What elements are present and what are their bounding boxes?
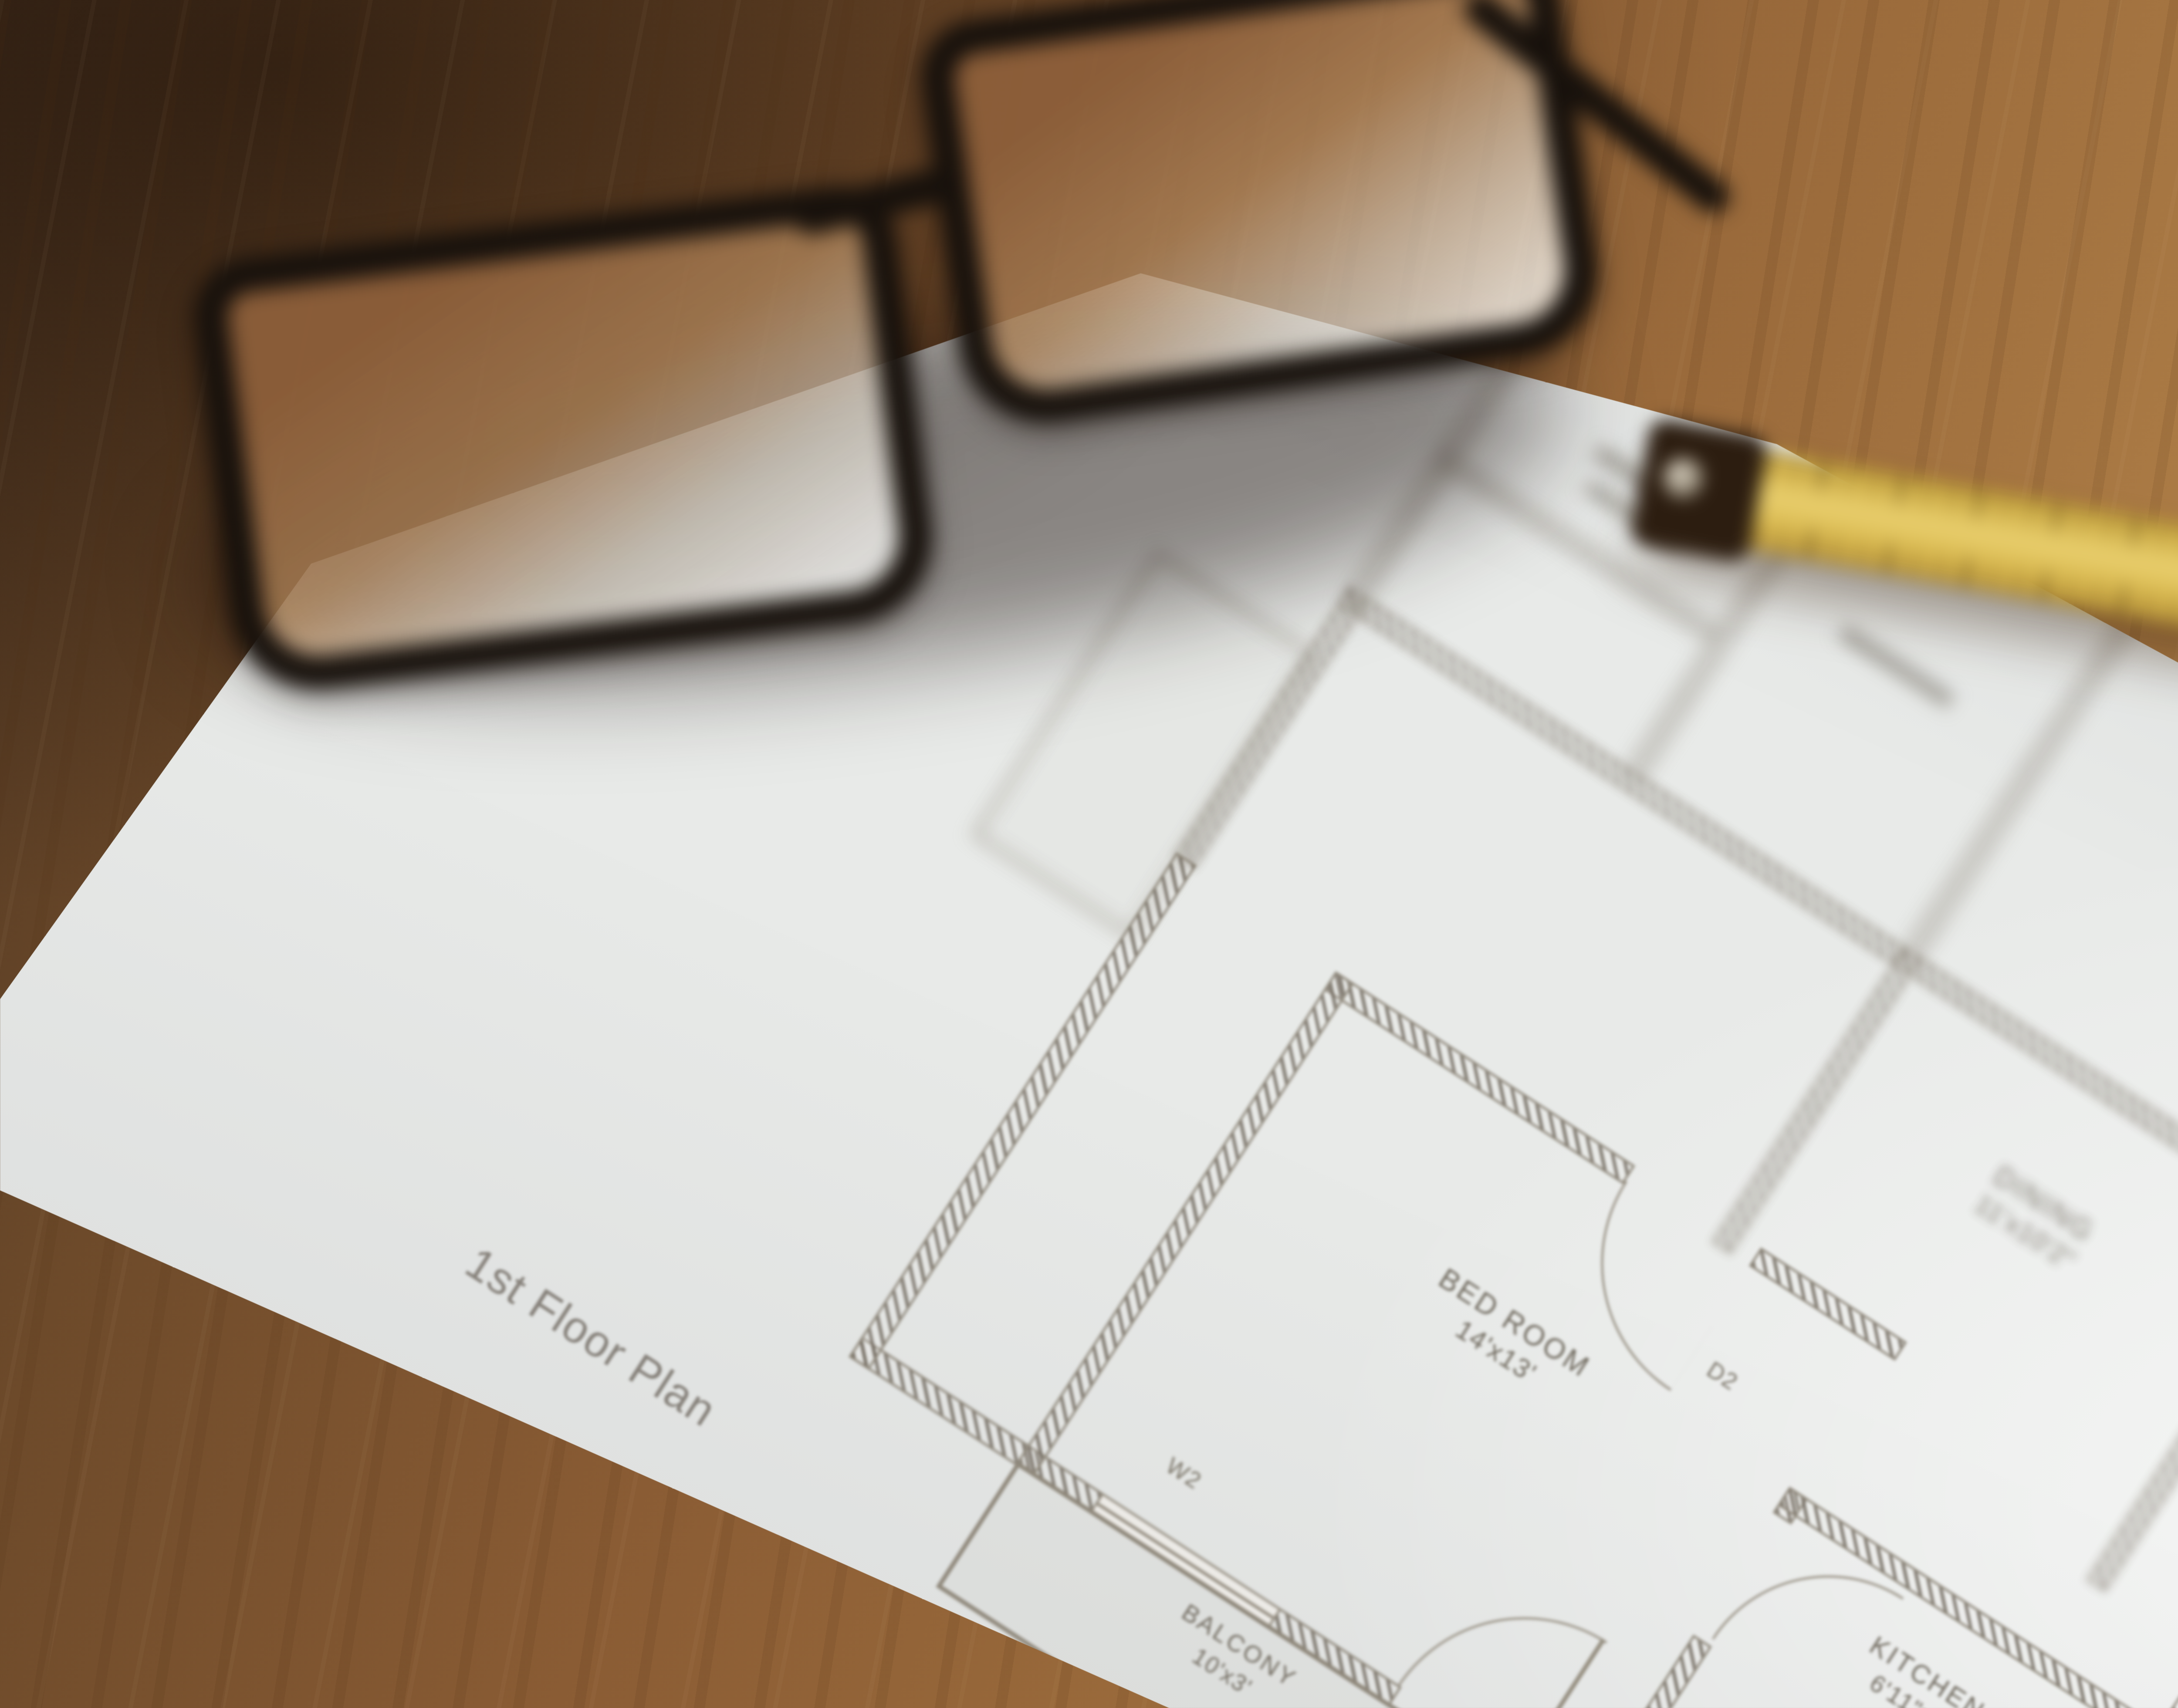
tag-d2-bedroom-left: D2 [1703, 1356, 1744, 1395]
tag-w2-left: W2 [1162, 1451, 1207, 1494]
wall-bedroom-left-north-b [1749, 1247, 1907, 1360]
ruler-hinge [1630, 417, 1769, 564]
glasses-left-lens [189, 180, 942, 699]
photo-stage: DINING 11'x10'2" BED ROOM 13'x19'8" [0, 0, 2178, 1708]
glasses-right-lens [914, 0, 1609, 434]
wall-bedroom-left-north-a [1324, 971, 1635, 1184]
ruler-rivet [1660, 455, 1706, 501]
